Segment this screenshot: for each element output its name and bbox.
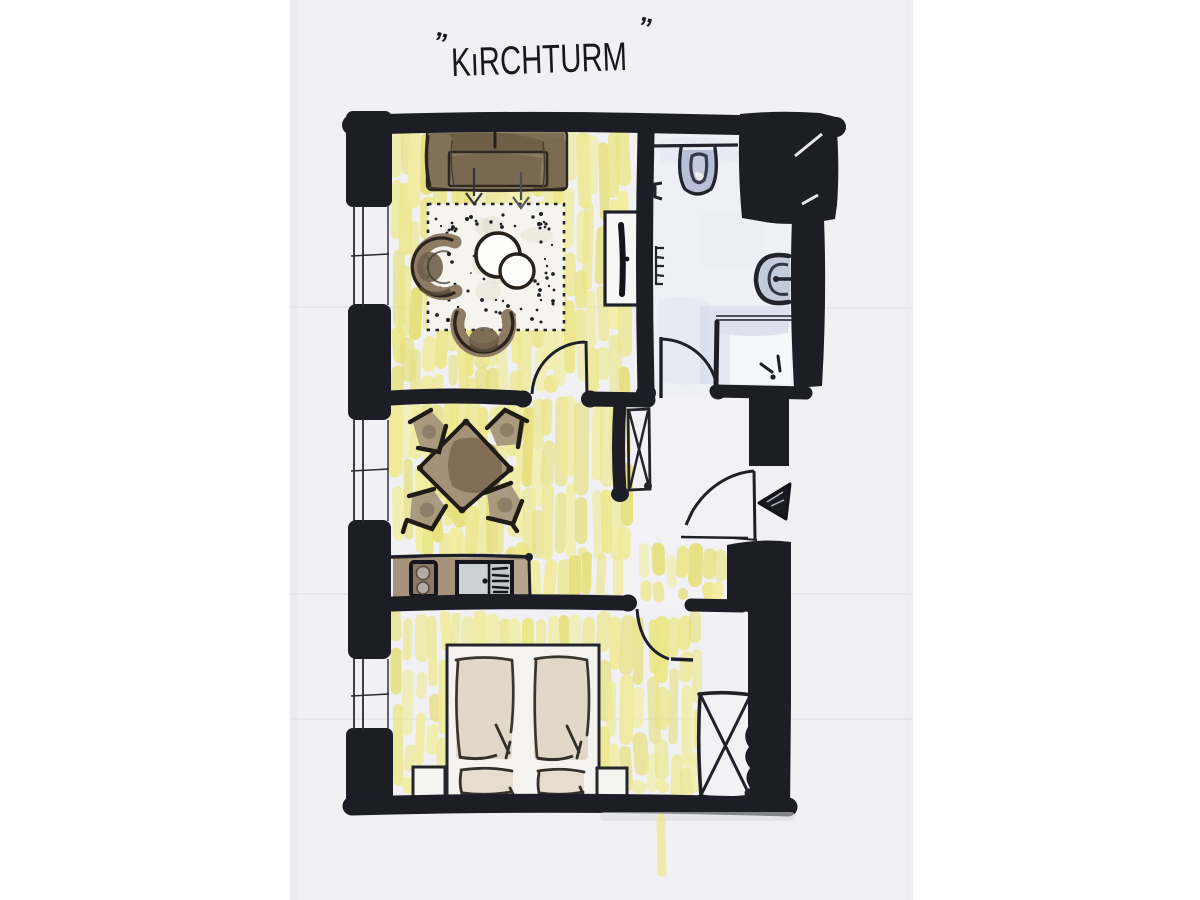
svg-text:KıRCHTURM: KıRCHTURM xyxy=(450,35,627,85)
